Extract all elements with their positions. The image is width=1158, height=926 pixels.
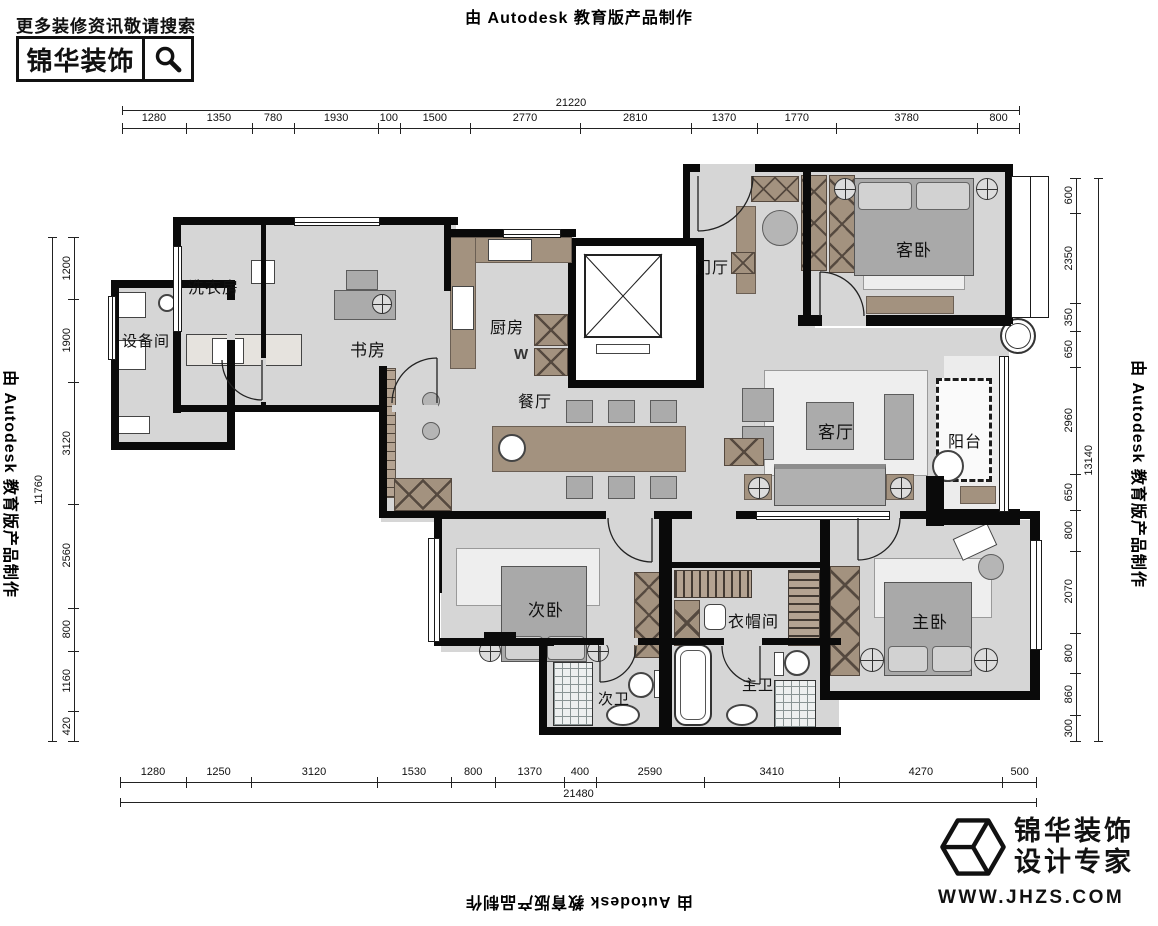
dimension-tick: [451, 777, 452, 788]
dimension-tick: [1070, 551, 1081, 552]
wall: [539, 638, 547, 735]
dimension-segment: 800: [977, 112, 1020, 129]
pillow: [888, 646, 928, 672]
wall: [659, 518, 672, 735]
door-opening: [261, 358, 266, 402]
dimension-segment: 3780: [836, 112, 977, 129]
window: [503, 229, 561, 238]
pillow: [932, 646, 972, 672]
dimension-segment: 800: [56, 608, 78, 651]
bay-window: [1011, 176, 1049, 318]
dimension-tick: [68, 651, 79, 652]
dimension-segment: 780: [252, 112, 294, 129]
dimension-segment: 3120: [56, 382, 78, 503]
dimension-segment: 3410: [704, 766, 839, 783]
wall: [379, 366, 387, 518]
dimension-value: 11760: [33, 475, 45, 505]
dimension-value: 800: [464, 766, 482, 778]
dimension-line: [1098, 178, 1099, 742]
dimension-segment: 1770: [757, 112, 836, 129]
dining-chair: [566, 476, 593, 499]
door-opening: [724, 638, 762, 645]
dimension-value: 1200: [61, 256, 73, 280]
dimension-segment: 600: [1058, 178, 1080, 213]
dimension-tick: [757, 123, 758, 134]
dimension-segment: 1370: [495, 766, 564, 783]
dimension-tick: [120, 777, 121, 788]
search-icon: [142, 39, 191, 79]
dimension-tick: [68, 711, 79, 712]
autodesk-stamp-left: 由 Autodesk 教育版产品制作: [0, 334, 24, 634]
water-point-mark: W: [514, 346, 528, 363]
plant: [978, 554, 1004, 580]
wall-partition: [444, 221, 451, 291]
shower-area: [553, 662, 593, 726]
dimension-segment: 4270: [839, 766, 1002, 783]
window: [999, 356, 1009, 512]
dimension-value: 1280: [142, 112, 166, 124]
dimension-tick: [1070, 303, 1081, 304]
cube-logo-icon: [938, 812, 1008, 882]
dimension-segment: 2070: [1058, 551, 1080, 633]
dimension-strip-right: 600235035065029606508002070800860300: [1058, 178, 1080, 742]
dimension-tick: [1070, 213, 1081, 214]
entry-cabinet: [751, 176, 799, 202]
kitchen-sink: [452, 286, 474, 330]
dimension-value: 2560: [61, 543, 73, 567]
dimension-tick: [1019, 123, 1020, 134]
dining-chair: [608, 476, 635, 499]
room-label-cloakroom: 衣帽间: [728, 608, 779, 632]
window: [173, 246, 182, 332]
logo-line1: 锦华装饰: [1014, 816, 1134, 847]
ceiling-light-symbol: [834, 178, 856, 200]
dining-chair: [566, 400, 593, 423]
stove: [488, 239, 532, 261]
dimension-segment: 2560: [56, 504, 78, 608]
dimension-tick: [580, 123, 581, 134]
dimension-tick: [377, 777, 378, 788]
dimension-value: 600: [1063, 186, 1075, 204]
dining-chair: [650, 476, 677, 499]
equipment-unit: [118, 416, 150, 434]
dimension-value: 1500: [423, 112, 447, 124]
dimension-segment: 3120: [251, 766, 377, 783]
dimension-value: 1930: [324, 112, 348, 124]
master-wardrobe: [830, 566, 860, 676]
room-label-laundry: 洗衣房: [188, 274, 239, 298]
wall: [824, 691, 1040, 700]
dimension-value: 800: [61, 620, 73, 638]
dining-chair: [608, 400, 635, 423]
dimension-segment: 300: [1058, 715, 1080, 742]
dimension-segment: 1500: [400, 112, 471, 129]
logo-line2: 设计专家: [1014, 847, 1134, 878]
dimension-value: 1350: [207, 112, 231, 124]
guest-tv-bench: [866, 296, 954, 314]
dimension-segment: 500: [1002, 766, 1037, 783]
ceiling-light-symbol: [372, 294, 392, 314]
dimension-value: 800: [989, 112, 1007, 124]
dimension-value: 780: [264, 112, 282, 124]
dimension-value: 100: [380, 112, 398, 124]
dimension-strip-bottom: 1280125031201530800137040025903410427050…: [120, 766, 1037, 783]
door-opening: [606, 511, 654, 519]
dimension-tick: [1002, 777, 1003, 788]
dimension-tick: [1070, 715, 1081, 716]
dimension-tick: [68, 299, 79, 300]
dimension-tick: [470, 123, 471, 134]
wall: [179, 405, 387, 412]
window: [108, 296, 116, 360]
desk-chair: [346, 270, 378, 290]
toilet: [118, 292, 146, 318]
pillow: [858, 182, 912, 210]
dimension-value: 860: [1063, 685, 1075, 703]
brand-name: 锦华装饰: [19, 39, 142, 79]
dimension-segment: 650: [1058, 331, 1080, 367]
dimension-segment: 1160: [56, 651, 78, 711]
dimension-value: 1370: [712, 112, 736, 124]
dimension-tick: [1070, 474, 1081, 475]
dimension-value: 2070: [1063, 579, 1075, 603]
dimension-tick: [1070, 510, 1081, 511]
dimension-value: 1160: [61, 669, 73, 693]
room-label-dining: 餐厅: [518, 388, 552, 412]
dimension-segment: 1280: [122, 112, 186, 129]
window: [428, 538, 440, 642]
tv-cabinet: [884, 394, 914, 460]
dimension-segment: 2960: [1058, 367, 1080, 474]
dimension-value: 4270: [909, 766, 933, 778]
clothes-rail: [788, 570, 820, 646]
dimension-strip-top: 1280135078019301001500277028101370177037…: [122, 112, 1020, 129]
toilet: [628, 672, 654, 698]
dimension-value: 800: [1063, 521, 1075, 539]
room-label-second-bath: 次卫: [598, 688, 630, 709]
dimension-value: 800: [1063, 644, 1075, 662]
dimension-tick: [68, 382, 79, 383]
room-label-kitchen: 厨房: [490, 314, 524, 338]
dimension-value: 350: [1063, 308, 1075, 326]
dimension-segment: 1370: [691, 112, 758, 129]
wall: [111, 442, 235, 450]
dimension-tick: [68, 237, 79, 238]
dimension-segment: 420: [56, 711, 78, 742]
kitchen-cabinet: [534, 348, 568, 376]
wall: [543, 638, 841, 645]
room-label-master-bedroom: 主卧: [912, 608, 948, 633]
dimension-value: 13140: [1083, 445, 1095, 476]
dimension-value: 500: [1011, 766, 1029, 778]
dimension-tick: [691, 123, 692, 134]
dimension-strip-left: 12001900312025608001160420: [56, 237, 78, 742]
door-opening: [392, 405, 438, 412]
dimension-segment: 1350: [186, 112, 252, 129]
dimension-tick: [251, 777, 252, 788]
dimension-tick: [564, 777, 565, 788]
dimension-segment: 650: [1058, 474, 1080, 510]
laundry-counter: [186, 334, 302, 366]
dimension-tick: [1070, 633, 1081, 634]
dimension-segment: 2770: [470, 112, 580, 129]
toilet-tank: [774, 652, 784, 676]
shaft-landing: [596, 344, 650, 354]
dimension-tick: [68, 741, 79, 742]
brand-search-box: 锦华装饰: [16, 36, 194, 82]
door-opening: [822, 315, 866, 326]
room-label-study: 书房: [350, 336, 386, 361]
dimension-value: 3780: [894, 112, 918, 124]
ceiling-light-symbol: [860, 648, 884, 672]
pillow: [916, 182, 970, 210]
dimension-segment: 1530: [377, 766, 451, 783]
logo-url: WWW.JHZS.COM: [938, 887, 1152, 909]
shower-area: [774, 680, 816, 728]
dimension-tick: [596, 777, 597, 788]
dimension-segment: 800: [451, 766, 495, 783]
dimension-tick: [1070, 178, 1081, 179]
dimension-tick: [68, 608, 79, 609]
dimension-segment: 100: [378, 112, 399, 129]
dimension-segment: 800: [1058, 633, 1080, 674]
dimension-segment: 1280: [120, 766, 186, 783]
dimension-tick: [1070, 673, 1081, 674]
dimension-tick: [252, 123, 253, 134]
wall: [683, 164, 690, 244]
dimension-tick: [294, 123, 295, 134]
dimension-value: 1900: [61, 328, 73, 352]
dimension-value: 3120: [61, 431, 73, 455]
island-sink: [498, 434, 526, 462]
entry-cabinet-small: [731, 252, 755, 274]
wall: [803, 164, 811, 321]
balcony-bench: [960, 486, 996, 504]
dimension-segment: 800: [1058, 510, 1080, 551]
room-label-equipment: 设备间: [122, 330, 170, 351]
dimension-value: 1770: [785, 112, 809, 124]
dimension-total-right: 13140: [1082, 178, 1096, 742]
dimension-value: 650: [1063, 483, 1075, 501]
dimension-line: [122, 110, 1020, 111]
dimension-tick: [68, 504, 79, 505]
autodesk-stamp-right: 由 Autodesk 教育版产品制作: [1128, 324, 1152, 624]
floorplan-page: W: [0, 0, 1158, 926]
dimension-line: [120, 802, 1037, 803]
dimension-tick: [836, 123, 837, 134]
dimension-value: 400: [571, 766, 589, 778]
dimension-segment: 860: [1058, 673, 1080, 715]
wall: [539, 727, 841, 735]
dimension-tick: [1070, 367, 1081, 368]
dimension-tick: [378, 123, 379, 134]
dimension-total-left: 11760: [32, 237, 46, 742]
room-label-guest-bedroom: 客卧: [896, 236, 932, 261]
door-opening: [700, 164, 755, 173]
dimension-tick: [495, 777, 496, 788]
dimension-value: 3120: [302, 766, 326, 778]
dimension-value: 2590: [638, 766, 662, 778]
dimension-value: 2350: [1063, 246, 1075, 270]
search-hint-text: 更多装修资讯敬请搜索: [16, 12, 196, 37]
dimension-segment: 1200: [56, 237, 78, 299]
door-opening: [227, 300, 235, 340]
dimension-total-top: 21220: [122, 97, 1020, 109]
window: [756, 511, 890, 520]
entry-chair: [762, 210, 798, 246]
wash-basin: [726, 704, 758, 726]
dimension-value: 650: [1063, 340, 1075, 358]
toilet: [784, 650, 810, 676]
dimension-value: 1250: [206, 766, 230, 778]
dimension-tick: [839, 777, 840, 788]
ceiling-light-symbol: [974, 648, 998, 672]
dimension-value: 2770: [513, 112, 537, 124]
dimension-tick: [186, 123, 187, 134]
dimension-segment: 2810: [580, 112, 691, 129]
dimension-segment: 2350: [1058, 213, 1080, 303]
dimension-line: [52, 237, 53, 742]
wall-partition: [670, 562, 822, 568]
dimension-tick: [977, 123, 978, 134]
window: [1030, 540, 1042, 650]
cloakroom-stool: [704, 604, 726, 630]
company-logo: 锦华装饰 设计专家 WWW.JHZS.COM: [938, 812, 1152, 909]
dimension-segment: 2590: [596, 766, 705, 783]
dimension-value: 300: [1063, 719, 1075, 737]
dimension-tick: [186, 777, 187, 788]
dimension-value: 1530: [402, 766, 426, 778]
wall: [820, 511, 830, 700]
window: [294, 217, 380, 226]
dimension-tick: [1070, 741, 1081, 742]
ceiling-light-symbol: [976, 178, 998, 200]
dimension-total-bottom: 21480: [120, 788, 1037, 800]
dimension-value: 2810: [623, 112, 647, 124]
dimension-value: 3410: [760, 766, 784, 778]
dimension-value: 420: [61, 717, 73, 735]
room-label-second-bedroom: 次卧: [528, 596, 564, 621]
dimension-segment: 1250: [186, 766, 251, 783]
room-label-master-bath: 主卫: [742, 674, 774, 695]
dimension-tick: [400, 123, 401, 134]
bathtub: [674, 644, 712, 726]
room-label-living: 客厅: [818, 418, 854, 443]
dimension-segment: 400: [564, 766, 595, 783]
dining-chair: [650, 400, 677, 423]
room-label-balcony: 阳台: [948, 428, 982, 452]
dimension-segment: 1900: [56, 299, 78, 383]
ceiling-light-symbol: [748, 477, 770, 499]
kitchen-cabinet: [534, 314, 568, 346]
dimension-value: 1280: [141, 766, 165, 778]
bar-stool: [422, 422, 440, 440]
magnifier-glyph: [154, 45, 182, 73]
door-opening: [604, 638, 638, 645]
ceiling-light-symbol: [890, 477, 912, 499]
clothes-rail: [674, 570, 752, 598]
dimension-segment: 1930: [294, 112, 378, 129]
dimension-segment: 350: [1058, 303, 1080, 331]
elevator-car: [584, 254, 662, 338]
dining-cabinet: [394, 478, 452, 511]
dimension-tick: [1036, 777, 1037, 788]
room-label-entry: 门厅: [695, 254, 729, 278]
dimension-value: 1370: [518, 766, 542, 778]
hall-cabinet: [724, 438, 764, 466]
dimension-tick: [1070, 331, 1081, 332]
wall: [484, 632, 516, 646]
armchair: [742, 388, 774, 422]
entry-console: [736, 206, 756, 294]
sofa: [774, 464, 886, 506]
dimension-value: 2960: [1063, 408, 1075, 432]
dimension-tick: [122, 123, 123, 134]
dimension-tick: [704, 777, 705, 788]
